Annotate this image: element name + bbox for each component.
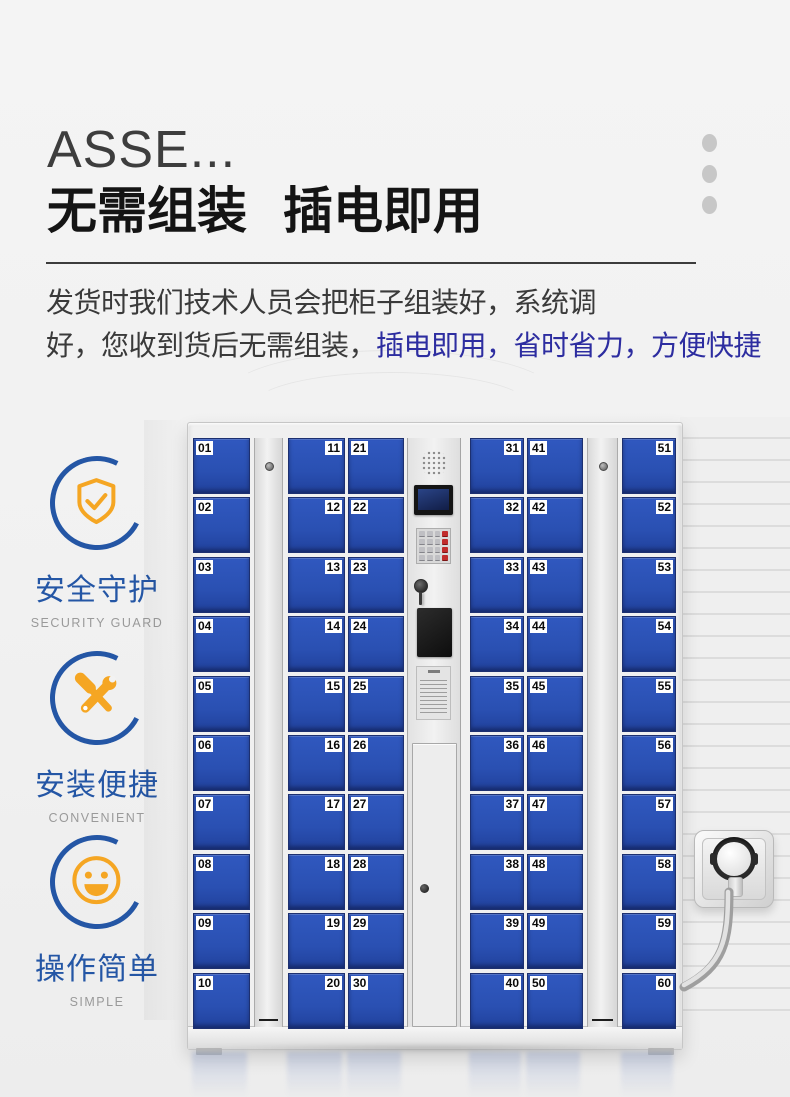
hinge-strip <box>587 438 618 1027</box>
locker-door: 34 <box>470 616 524 672</box>
intro-paragraph: 发货时我们技术人员会把柜子组装好，系统调 好，您收到货后无需组装，插电即用，省时… <box>46 281 776 367</box>
locker-door: 48 <box>527 854 583 910</box>
intro-line-2: 好，您收到货后无需组装，插电即用，省时省力，方便快捷 <box>46 324 776 367</box>
locker-door: 02 <box>193 497 250 553</box>
dot <box>702 165 717 183</box>
locker-door: 46 <box>527 735 583 791</box>
door-number-label: 01 <box>196 441 213 455</box>
locker-door: 47 <box>527 794 583 850</box>
door-number-label: 16 <box>325 738 342 752</box>
smiley-icon <box>63 847 130 917</box>
locker-door: 17 <box>288 794 345 850</box>
locker-door: 56 <box>622 735 676 791</box>
locker-door: 24 <box>348 616 404 672</box>
door-number-label: 07 <box>196 797 213 811</box>
keypad-key <box>419 547 425 553</box>
door-number-label: 04 <box>196 619 213 633</box>
locker-door: 43 <box>527 557 583 613</box>
door-number-label: 02 <box>196 500 213 514</box>
locker-door: 30 <box>348 973 404 1029</box>
power-plug <box>717 842 751 876</box>
feature-ring <box>38 639 156 757</box>
door-number-label: 27 <box>351 797 368 811</box>
locker-door: 36 <box>470 735 524 791</box>
door-number-label: 20 <box>325 976 342 990</box>
keypad-key <box>435 539 441 545</box>
door-number-label: 28 <box>351 857 368 871</box>
door-number-label: 12 <box>325 500 342 514</box>
keypad <box>416 528 451 564</box>
keypad-key <box>427 531 433 537</box>
door-number-label: 32 <box>504 500 521 514</box>
door-number-label: 19 <box>325 916 342 930</box>
locker-door: 25 <box>348 676 404 732</box>
locker-door: 54 <box>622 616 676 672</box>
locker-door: 10 <box>193 973 250 1029</box>
door-number-label: 14 <box>325 619 342 633</box>
door-number-label: 15 <box>325 679 342 693</box>
decor-dots <box>702 134 718 227</box>
door-number-label: 37 <box>504 797 521 811</box>
keypad-key <box>435 555 441 561</box>
feature-ring <box>38 444 156 562</box>
door-number-label: 17 <box>325 797 342 811</box>
keypad-function-key <box>442 547 448 553</box>
page-title-en: ASSE... <box>47 124 236 176</box>
title-part-2: 插电即用 <box>283 183 483 239</box>
cabinet-shadow <box>182 1044 686 1052</box>
sticker-text-lines <box>420 677 447 716</box>
control-panel <box>407 438 461 1027</box>
locker-door: 18 <box>288 854 345 910</box>
door-number-label: 23 <box>351 560 368 574</box>
locker-door: 55 <box>622 676 676 732</box>
socket-notch <box>710 853 715 865</box>
door-number-label: 56 <box>656 738 673 752</box>
locker-door: 29 <box>348 913 404 969</box>
notice-sticker <box>416 666 451 720</box>
wall-shading <box>144 420 188 1020</box>
keypad-key <box>427 555 433 561</box>
socket-notch <box>753 853 758 865</box>
locker-door: 32 <box>470 497 524 553</box>
locker-door: 21 <box>348 438 404 494</box>
feature-ring <box>38 823 156 941</box>
locker-door: 57 <box>622 794 676 850</box>
door-number-label: 45 <box>530 679 547 693</box>
door-number-label: 05 <box>196 679 213 693</box>
door-number-label: 38 <box>504 857 521 871</box>
door-number-label: 09 <box>196 916 213 930</box>
door-number-label: 18 <box>325 857 342 871</box>
locker-door: 23 <box>348 557 404 613</box>
door-number-label: 21 <box>351 441 368 455</box>
locker-door: 42 <box>527 497 583 553</box>
locker-door: 08 <box>193 854 250 910</box>
intro-line-1: 发货时我们技术人员会把柜子组装好，系统调 <box>46 281 776 324</box>
door-number-label: 52 <box>656 500 673 514</box>
screw-icon <box>265 462 274 471</box>
keypad-key <box>419 531 425 537</box>
locker-door: 41 <box>527 438 583 494</box>
title-divider <box>46 262 696 264</box>
door-number-label: 49 <box>530 916 547 930</box>
strip-dash <box>592 1019 612 1021</box>
door-number-label: 50 <box>530 976 547 990</box>
keypad-function-key <box>442 555 448 561</box>
locker-door: 12 <box>288 497 345 553</box>
service-door-lock <box>420 884 429 893</box>
keypad-key <box>419 555 425 561</box>
locker-door: 03 <box>193 557 250 613</box>
page-title-cn: 无需组装插电即用 <box>47 186 483 236</box>
screen-lcd <box>418 489 449 510</box>
keypad-function-key <box>442 539 448 545</box>
locker-door: 52 <box>622 497 676 553</box>
locker-door: 09 <box>193 913 250 969</box>
locker-door: 28 <box>348 854 404 910</box>
door-number-label: 06 <box>196 738 213 752</box>
locker-door: 45 <box>527 676 583 732</box>
door-reflection <box>621 1052 673 1097</box>
locker-door: 49 <box>527 913 583 969</box>
locker-door: 13 <box>288 557 345 613</box>
door-number-label: 55 <box>656 679 673 693</box>
keypad-key <box>419 539 425 545</box>
door-number-label: 40 <box>504 976 521 990</box>
door-number-label: 30 <box>351 976 368 990</box>
locker-door: 39 <box>470 913 524 969</box>
door-number-label: 57 <box>656 797 673 811</box>
door-reflection <box>287 1052 342 1097</box>
door-number-label: 51 <box>656 441 673 455</box>
locker-door: 40 <box>470 973 524 1029</box>
locker-door: 19 <box>288 913 345 969</box>
locker-door: 26 <box>348 735 404 791</box>
locker-door: 20 <box>288 973 345 1029</box>
locker-door: 37 <box>470 794 524 850</box>
keypad-key <box>435 531 441 537</box>
inserted-key <box>419 592 422 605</box>
locker-door: 51 <box>622 438 676 494</box>
door-number-label: 54 <box>656 619 673 633</box>
door-number-label: 03 <box>196 560 213 574</box>
door-number-label: 46 <box>530 738 547 752</box>
door-number-label: 41 <box>530 441 547 455</box>
display-screen <box>414 485 453 515</box>
hinge-strip <box>254 438 283 1027</box>
intro-line-2-black: 好，您收到货后无需组装， <box>46 330 376 361</box>
door-number-label: 26 <box>351 738 368 752</box>
door-number-label: 29 <box>351 916 368 930</box>
door-number-label: 24 <box>351 619 368 633</box>
keypad-key <box>427 547 433 553</box>
door-reflection <box>526 1052 580 1097</box>
locker-door: 50 <box>527 973 583 1029</box>
sticker-title <box>428 670 440 673</box>
door-number-label: 39 <box>504 916 521 930</box>
door-number-label: 36 <box>504 738 521 752</box>
power-cable <box>660 886 780 1006</box>
locker-door: 38 <box>470 854 524 910</box>
door-reflection <box>192 1052 247 1097</box>
dot <box>702 196 717 214</box>
dot <box>702 134 717 152</box>
locker-door: 31 <box>470 438 524 494</box>
keypad-function-key <box>442 531 448 537</box>
door-number-label: 58 <box>656 857 673 871</box>
door-number-label: 22 <box>351 500 368 514</box>
speaker-grille-icon <box>421 450 447 476</box>
locker-door: 14 <box>288 616 345 672</box>
locker-cabinet: 0102030405060708091011121314151617181920… <box>187 422 683 1050</box>
door-number-label: 53 <box>656 560 673 574</box>
door-number-label: 35 <box>504 679 521 693</box>
locker-door: 06 <box>193 735 250 791</box>
door-reflection <box>347 1052 401 1097</box>
keypad-key <box>427 539 433 545</box>
door-number-label: 47 <box>530 797 547 811</box>
title-part-1: 无需组装 <box>47 183 247 239</box>
door-number-label: 25 <box>351 679 368 693</box>
socket-recess <box>712 837 756 881</box>
door-number-label: 31 <box>504 441 521 455</box>
door-number-label: 08 <box>196 857 213 871</box>
door-number-label: 10 <box>196 976 213 990</box>
locker-door: 01 <box>193 438 250 494</box>
locker-door: 44 <box>527 616 583 672</box>
locker-door: 27 <box>348 794 404 850</box>
door-number-label: 34 <box>504 619 521 633</box>
locker-door: 16 <box>288 735 345 791</box>
door-reflection <box>469 1052 521 1097</box>
door-number-label: 44 <box>530 619 547 633</box>
locker-door: 22 <box>348 497 404 553</box>
locker-door: 15 <box>288 676 345 732</box>
locker-door: 07 <box>193 794 250 850</box>
door-number-label: 13 <box>325 560 342 574</box>
screw-icon <box>599 462 608 471</box>
door-number-label: 43 <box>530 560 547 574</box>
door-number-label: 11 <box>325 441 342 455</box>
intro-highlight: 插电即用，省时省力，方便快捷 <box>376 330 761 361</box>
locker-door: 05 <box>193 676 250 732</box>
strip-dash <box>259 1019 278 1021</box>
tools-icon <box>65 664 130 732</box>
door-number-label: 33 <box>504 560 521 574</box>
card-reader-panel <box>417 608 452 657</box>
locker-door: 04 <box>193 616 250 672</box>
door-number-label: 48 <box>530 857 547 871</box>
page: ASSE... 无需组装插电即用 发货时我们技术人员会把柜子组装好，系统调 好，… <box>0 0 790 1097</box>
door-number-label: 42 <box>530 500 547 514</box>
locker-door: 35 <box>470 676 524 732</box>
locker-door: 33 <box>470 557 524 613</box>
locker-door: 53 <box>622 557 676 613</box>
service-door <box>412 743 457 1027</box>
keypad-key <box>435 547 441 553</box>
locker-door: 11 <box>288 438 345 494</box>
lock-keyhole-icon <box>414 579 428 593</box>
shield-check-icon <box>67 470 128 537</box>
